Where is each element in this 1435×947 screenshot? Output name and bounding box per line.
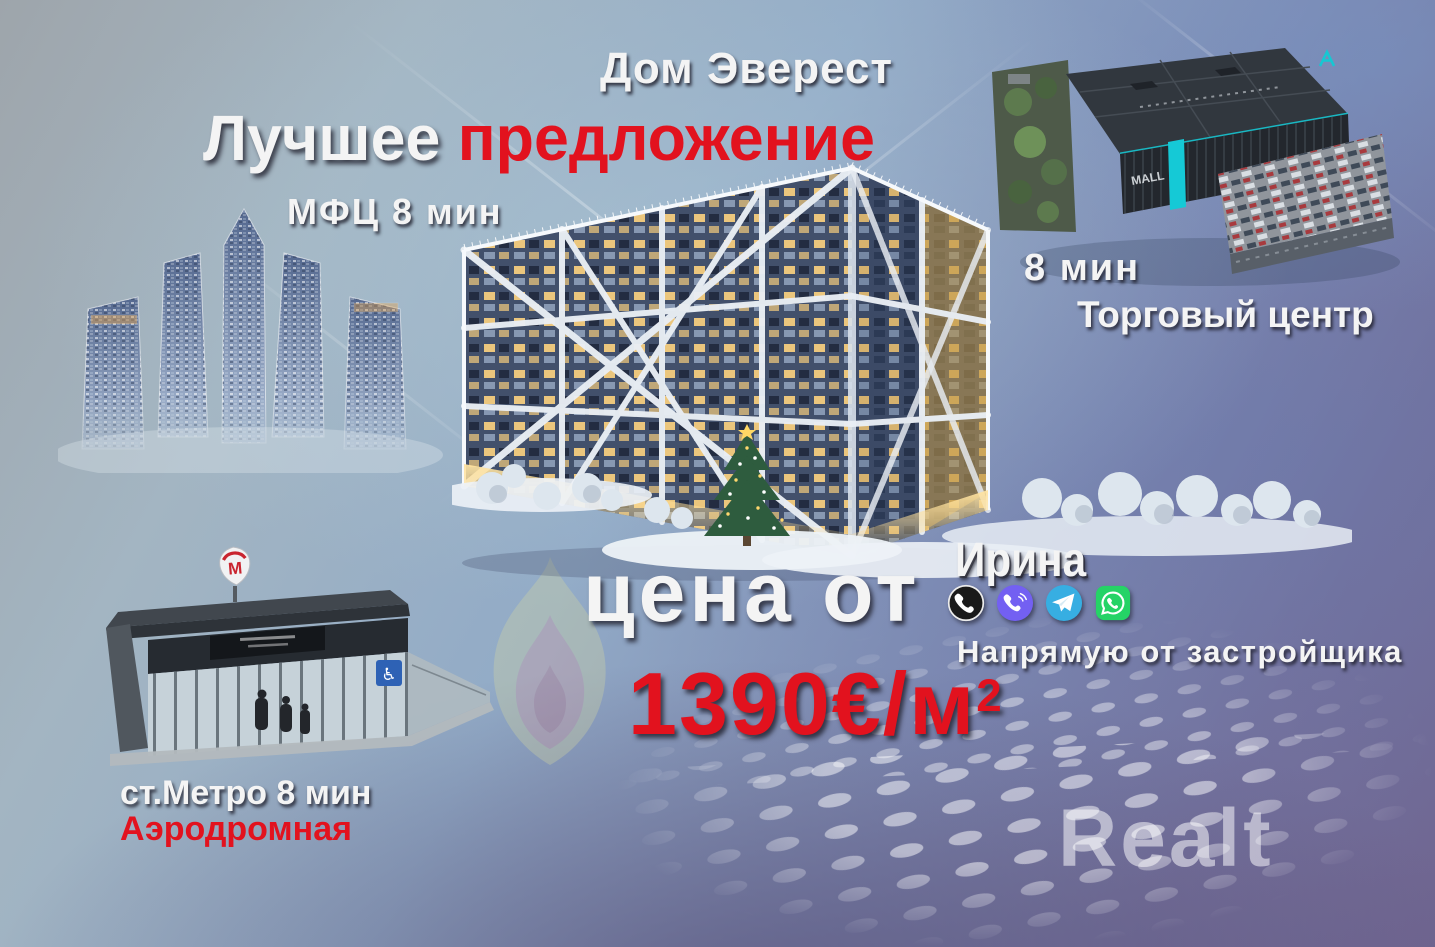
telegram-icon[interactable] [1045, 584, 1083, 622]
mall-logo-a-icon [1320, 52, 1334, 66]
messenger-icons [947, 584, 1132, 622]
skyscrapers-illustration [58, 203, 448, 473]
mall-name-label: Торговый центр [1077, 296, 1374, 333]
metro-station-name: Аэродромная [120, 812, 352, 846]
svg-text:♿: ♿ [381, 665, 396, 685]
viber-icon[interactable] [996, 584, 1034, 622]
promo-poster: MALL М [0, 0, 1435, 947]
realt-watermark: Realt [1058, 798, 1274, 880]
phone-icon[interactable] [947, 584, 985, 622]
poi-mfc-label: МФЦ 8 мин [287, 194, 503, 230]
metro-logo-icon: М [218, 546, 251, 586]
project-title: Дом Эверест [600, 47, 893, 91]
price-label: цена от [583, 550, 921, 634]
mall-time-label: 8 мин [1024, 249, 1140, 287]
headline-white: Лучшее [203, 102, 440, 174]
accessibility-sign-icon: ♿ [376, 660, 402, 686]
whatsapp-icon[interactable] [1094, 584, 1132, 622]
headline-red: предложение [458, 102, 875, 174]
contact-name: Ирина [955, 537, 1086, 585]
price-value: 1390€/м2 [628, 660, 1004, 748]
metro-time-label: ст.Метро 8 мин [120, 776, 371, 810]
direct-from-developer-label: Напрямую от застройщика [957, 636, 1403, 667]
headline: Лучшее предложение [203, 106, 875, 170]
metro-entrance-photo: М ♿ [90, 540, 500, 775]
svg-text:М: М [227, 558, 243, 578]
